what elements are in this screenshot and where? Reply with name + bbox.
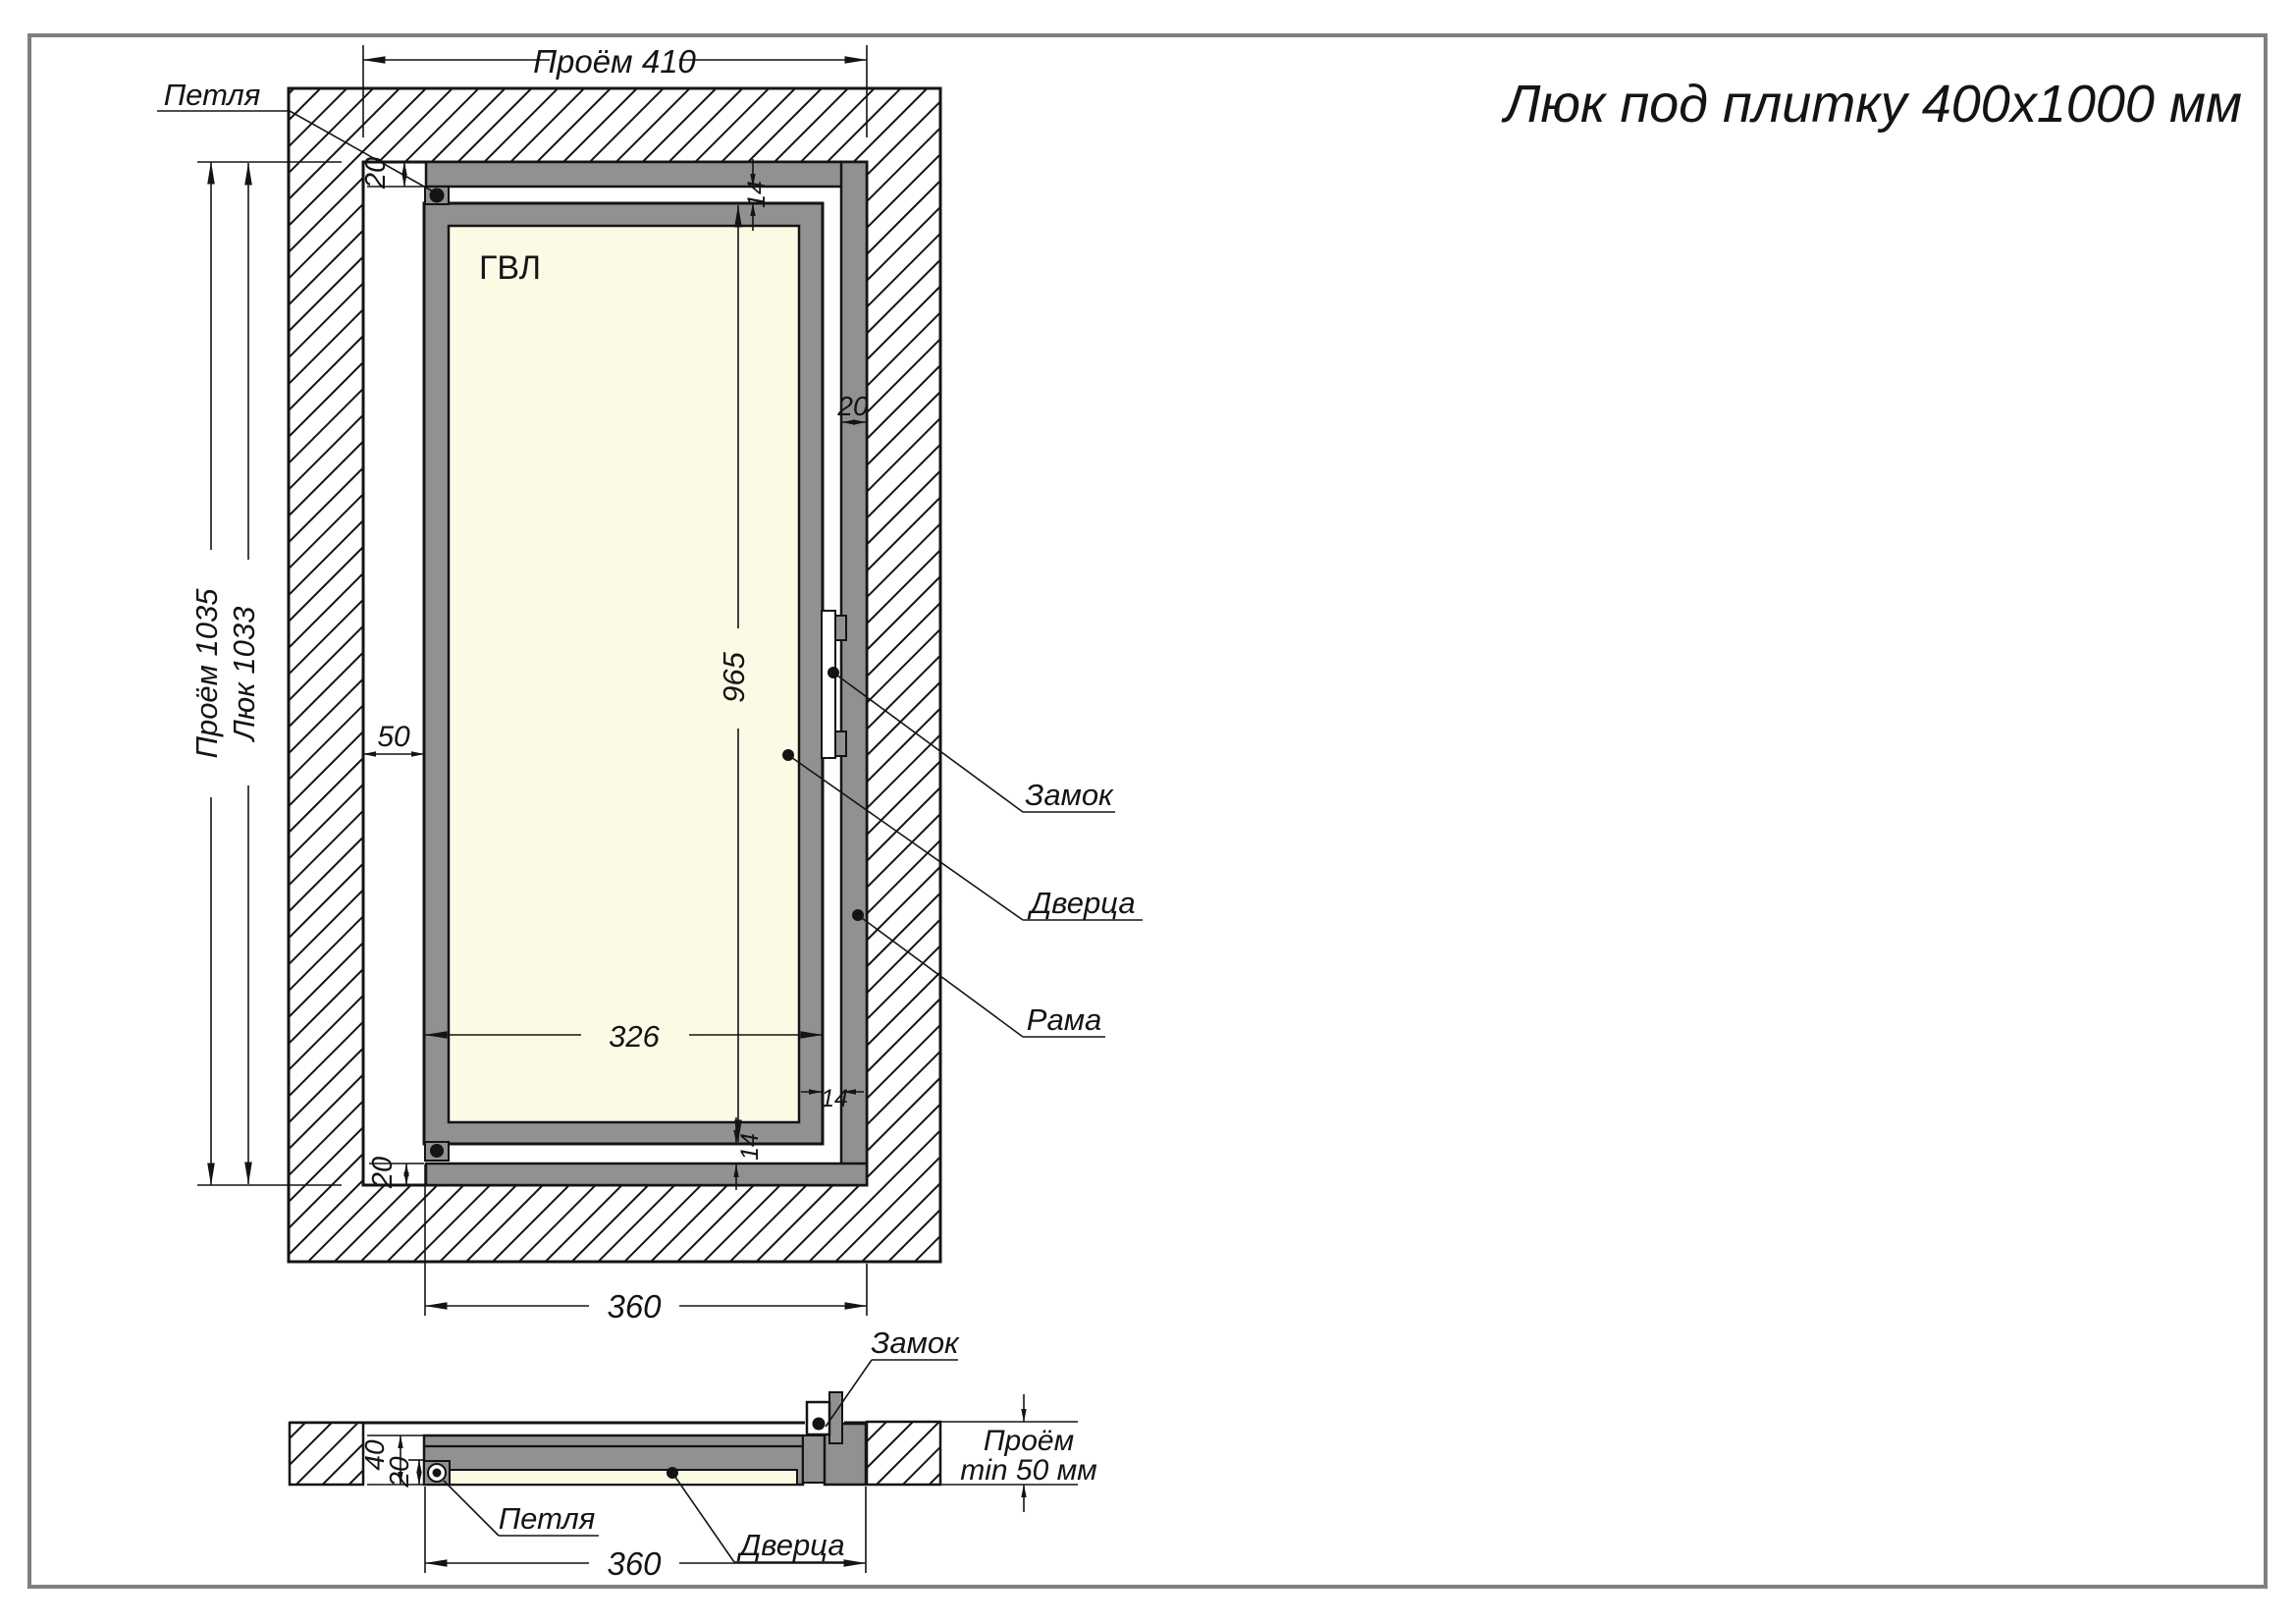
dim-outer-width-front-text: 360 (607, 1288, 662, 1325)
wall-hatch-left (290, 1423, 363, 1485)
label-lock-section: Замок (826, 1326, 960, 1427)
label-door-front: Дверца (782, 749, 1143, 920)
technical-drawing: Люк под плитку 400х1000 мм ГВЛ (0, 0, 2296, 1624)
dim-frame-bottom-text: 20 (367, 1157, 399, 1189)
dim-panel-thickness-text: 20 (384, 1456, 414, 1489)
label-frame-front-text: Рама (1027, 1002, 1101, 1037)
label-door-section-text: Дверца (736, 1528, 844, 1562)
frame-right-bar (841, 162, 867, 1185)
dim-right-gap-text: 14 (821, 1085, 848, 1112)
hinge-bottom-pin (430, 1144, 444, 1158)
dim-door-width-text: 326 (609, 1019, 660, 1054)
page-border (29, 35, 2266, 1587)
dim-frame-right: 20 (836, 391, 869, 422)
dim-opening-width-text: Проём 410 (533, 43, 696, 80)
label-hinge-section: Петля (444, 1481, 599, 1536)
dim-side-gap-text: 50 (377, 721, 410, 753)
dim-door-height-text: 965 (717, 651, 751, 702)
hinge-section-pin (433, 1469, 442, 1478)
label-lock-front-text: Замок (1025, 778, 1114, 812)
label-door-front-text: Дверца (1027, 886, 1135, 920)
dim-opening-height-text: Проём 1035 (189, 588, 224, 759)
dim-hatch-height-text: Люк 1033 (227, 607, 261, 743)
lock-section-body (807, 1402, 829, 1435)
dim-depth-value: min 50 мм (960, 1454, 1097, 1487)
door-end-block (803, 1435, 825, 1483)
hinge-section (424, 1461, 450, 1485)
front-view: ГВЛ Проём 410 (157, 43, 1143, 1325)
dim-outer-width-section-text: 360 (607, 1545, 662, 1582)
dim-frame-right-text: 20 (836, 391, 869, 421)
label-lock-section-text: Замок (871, 1326, 960, 1360)
hinge-bottom (425, 1142, 449, 1161)
frame-bottom-bar (426, 1164, 867, 1185)
section-view: 40 20 360 Проём min 50 мм Замок (290, 1326, 1097, 1582)
drawing-title: Люк под плитку 400х1000 мм (1501, 75, 2242, 134)
dim-bottom-gap-text: 14 (736, 1133, 764, 1161)
gvl-section-layer (449, 1470, 797, 1485)
frame-top-bar (426, 162, 867, 187)
drawing-canvas: Люк под плитку 400х1000 мм ГВЛ (0, 0, 2296, 1624)
dim-top-gap-text: 14 (743, 181, 771, 208)
gvl-label: ГВЛ (479, 249, 541, 287)
dim-frame-top-text: 20 (360, 157, 392, 189)
dim-side-gap: 50 (363, 721, 424, 754)
dim-depth: Проём min 50 мм (940, 1394, 1097, 1512)
label-hinge-section-text: Петля (499, 1501, 596, 1536)
lock-section-cylinder (813, 1418, 826, 1431)
dim-hatch-height: Люк 1033 (227, 163, 261, 1184)
dim-panel-thickness: 20 (384, 1456, 424, 1489)
label-hinge-front-text: Петля (164, 78, 261, 112)
dim-depth-label: Проём (984, 1425, 1074, 1457)
wall-hatch-right (867, 1422, 940, 1485)
